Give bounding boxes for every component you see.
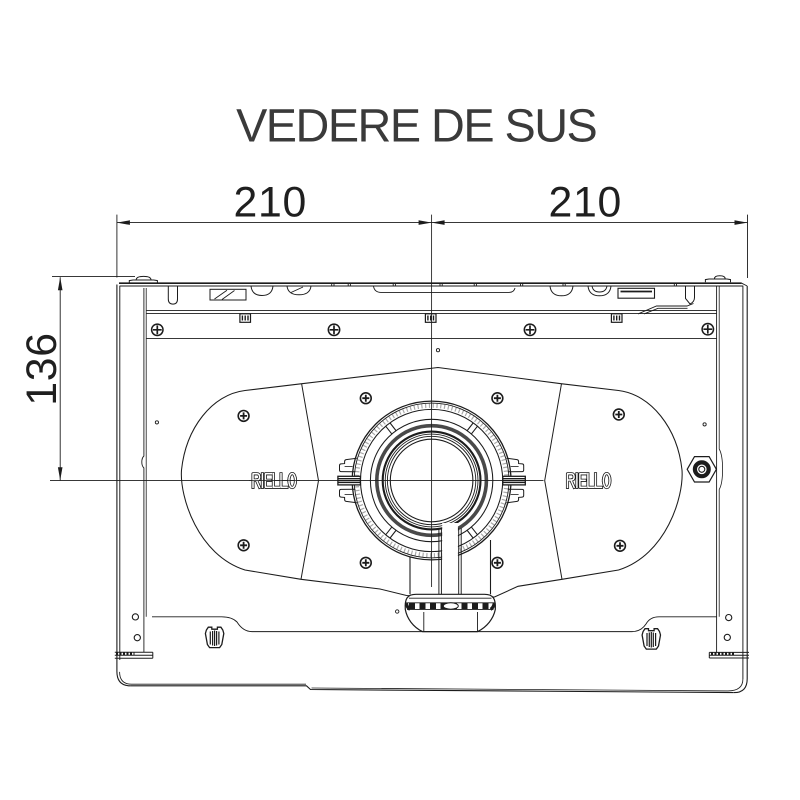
svg-text:136: 136 xyxy=(18,332,66,406)
svg-text:210: 210 xyxy=(549,179,623,227)
svg-text:210: 210 xyxy=(234,179,308,227)
svg-text:VEDERE DE SUS: VEDERE DE SUS xyxy=(236,100,596,152)
